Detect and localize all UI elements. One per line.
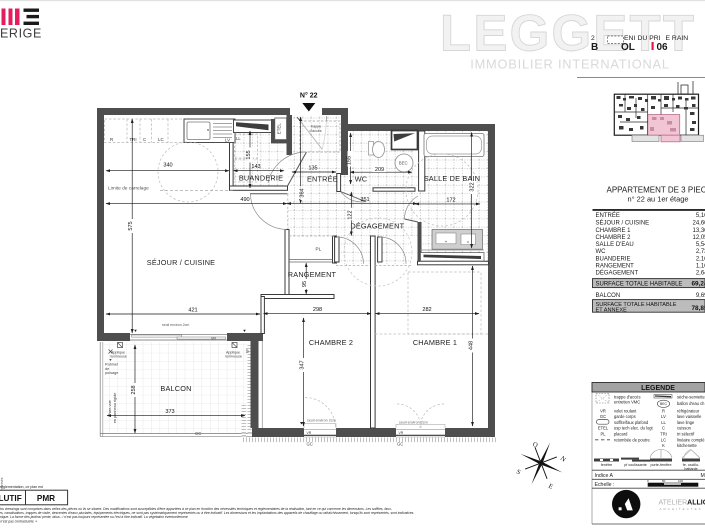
svg-text:EP: EP	[246, 348, 250, 353]
svg-text:421: 421	[188, 308, 197, 314]
svg-text:SALLE D'EAU: SALLE D'EAU	[596, 242, 634, 248]
svg-text:lumineuse: lumineuse	[111, 355, 127, 359]
svg-text:volet roulant: volet roulant	[614, 408, 637, 413]
svg-text:SALLE DE BAIN: SALLE DE BAIN	[424, 174, 481, 183]
svg-text:seuil environ 2cm: seuil environ 2cm	[307, 418, 336, 422]
svg-text:78,85: 78,85	[692, 305, 705, 312]
svg-text:K: K	[662, 443, 665, 448]
svg-text:373: 373	[165, 409, 174, 415]
svg-text:M: M	[701, 473, 705, 479]
svg-text:575: 575	[128, 221, 134, 230]
svg-text:GC: GC	[397, 442, 403, 447]
svg-text:69,24: 69,24	[692, 281, 705, 288]
svg-text:282: 282	[422, 307, 431, 313]
svg-text:100: 100	[678, 479, 683, 483]
svg-text:ENTRÉE: ENTRÉE	[596, 212, 620, 219]
svg-text:fenêtre: fenêtre	[601, 463, 612, 467]
svg-text:13,36: 13,36	[692, 228, 705, 234]
svg-text:seuil environ 2cm: seuil environ 2cm	[162, 323, 189, 327]
svg-text:ETEL: ETEL	[598, 426, 609, 431]
svg-text:Limite de carrelage: Limite de carrelage	[108, 186, 149, 192]
svg-text:2,73: 2,73	[696, 249, 705, 255]
svg-text:LUTIF: LUTIF	[0, 494, 22, 503]
svg-text:VR: VR	[211, 336, 216, 340]
svg-text:entretien VMC: entretien VMC	[614, 399, 640, 404]
svg-text:143: 143	[251, 164, 260, 170]
svg-text:PL: PL	[600, 432, 606, 437]
svg-text:155: 155	[347, 156, 353, 165]
svg-text:ENTRÉE: ENTRÉE	[307, 175, 338, 184]
svg-text:retombée de poutre: retombée de poutre	[614, 437, 650, 442]
svg-text:C: C	[143, 137, 146, 142]
svg-text:SURFACE TOTALE HABITABLE: SURFACE TOTALE HABITABLE	[596, 281, 683, 287]
svg-text:172: 172	[446, 197, 455, 203]
svg-text:2,16: 2,16	[696, 256, 705, 262]
svg-text:DÉGAGEMENT: DÉGAGEMENT	[596, 270, 639, 277]
svg-text:BALCON: BALCON	[596, 293, 621, 299]
svg-text:SÉJOUR / CUISINE: SÉJOUR / CUISINE	[147, 258, 215, 267]
svg-text:Pare-vue: Pare-vue	[108, 400, 112, 415]
svg-text:R: R	[110, 137, 113, 142]
svg-text:SÉJOUR / CUISINE: SÉJOUR / CUISINE	[596, 220, 650, 227]
svg-text:en panneau rigide: en panneau rigide	[113, 393, 117, 423]
svg-text:351: 351	[360, 197, 369, 203]
svg-text:esp tech elec. du logt: esp tech elec. du logt	[614, 426, 654, 431]
svg-text:PL: PL	[316, 247, 322, 252]
svg-text:LC: LC	[661, 437, 666, 442]
svg-text:C: C	[662, 426, 665, 431]
svg-text:BEC: BEC	[399, 161, 408, 166]
svg-text:réfrigérateur: réfrigérateur	[677, 408, 700, 413]
svg-text:PMR: PMR	[37, 494, 55, 503]
svg-text:porte-fenêtre: porte-fenêtre	[650, 463, 671, 467]
svg-text:CHAMBRE 2: CHAMBRE 2	[309, 338, 353, 347]
svg-text:490: 490	[240, 197, 249, 203]
svg-text:N° 22: N° 22	[300, 92, 318, 100]
svg-text:ARCHITECTES: ARCHITECTES	[660, 507, 703, 511]
svg-text:lave linge: lave linge	[677, 420, 695, 425]
svg-text:LL: LL	[236, 136, 241, 141]
svg-text:1,16: 1,16	[696, 263, 705, 269]
svg-text:BUANDERIE: BUANDERIE	[239, 174, 283, 183]
svg-text:CHAMBRE 1: CHAMBRE 1	[596, 228, 632, 234]
svg-text:340: 340	[163, 163, 172, 169]
svg-text:448: 448	[469, 341, 475, 350]
svg-text:E RAIN: E RAIN	[666, 35, 689, 42]
svg-text:LV: LV	[225, 138, 230, 143]
svg-text:2,64: 2,64	[696, 271, 705, 277]
svg-text:puisage: puisage	[105, 371, 118, 375]
svg-text:364: 364	[300, 188, 306, 197]
svg-text:BALCON: BALCON	[160, 384, 191, 393]
svg-text:258: 258	[131, 385, 137, 394]
svg-text:placard: placard	[614, 432, 628, 437]
svg-text:Indice A: Indice A	[595, 473, 614, 479]
svg-text:éventuellement représentée n'e: éventuellement représentée n'est pas con…	[0, 519, 37, 523]
svg-text:seuil environ 2cm: seuil environ 2cm	[399, 420, 428, 424]
svg-text:VR: VR	[307, 431, 312, 435]
svg-text:ballon d'eau ch: ballon d'eau ch	[677, 401, 705, 406]
svg-text:APPARTEMENT DE 3 PIECES: APPARTEMENT DE 3 PIECES	[607, 186, 705, 195]
svg-text:DÉGAGEMENT: DÉGAGEMENT	[350, 222, 404, 231]
svg-text:WC: WC	[355, 175, 368, 184]
svg-text:soffite/faux plafond: soffite/faux plafond	[614, 420, 649, 425]
svg-text:347: 347	[300, 360, 306, 369]
svg-text:VR: VR	[399, 431, 404, 435]
svg-text:BEC: BEC	[660, 402, 668, 406]
svg-text:298: 298	[313, 307, 322, 313]
svg-text:GC: GC	[600, 414, 606, 419]
svg-text:12,05: 12,05	[692, 235, 705, 241]
svg-text:RANGEMENT: RANGEMENT	[288, 270, 337, 279]
svg-text:sèche-serviette: sèche-serviette	[677, 395, 705, 400]
svg-text:BUANDERIE: BUANDERIE	[596, 256, 631, 262]
svg-text:9,69: 9,69	[696, 293, 705, 299]
svg-text:TRI: TRI	[130, 137, 137, 142]
svg-text:Echelle :: Echelle :	[595, 482, 615, 488]
svg-text:CHAMBRE 1: CHAMBRE 1	[413, 338, 457, 347]
svg-text:WC: WC	[596, 249, 607, 255]
svg-text:R: R	[662, 408, 665, 413]
svg-text:garde corps: garde corps	[614, 414, 636, 419]
svg-text:lumineuse: lumineuse	[226, 355, 242, 359]
svg-text:OL: OL	[621, 42, 635, 53]
svg-text:5,16: 5,16	[696, 213, 705, 219]
svg-text:135: 135	[308, 166, 317, 172]
svg-text:LV: LV	[661, 414, 666, 419]
svg-text:ment à la réglementation, ce p: ment à la réglementation, ce plan est	[0, 485, 43, 489]
svg-text:LC: LC	[158, 137, 164, 142]
svg-text:CHAMBRE 2: CHAMBRE 2	[596, 235, 632, 241]
svg-text:VR: VR	[600, 408, 606, 413]
svg-text:n° 22 au 1er étage: n° 22 au 1er étage	[628, 194, 689, 203]
svg-text:linéaire complé: linéaire complé	[677, 437, 705, 442]
svg-text:ERIGE: ERIGE	[0, 27, 42, 41]
svg-text:24,60: 24,60	[692, 221, 705, 227]
svg-text:GC: GC	[307, 442, 313, 447]
svg-text:B: B	[591, 42, 598, 53]
svg-text:DU PRI: DU PRI	[638, 35, 661, 42]
svg-text:TRI: TRI	[660, 432, 667, 437]
svg-text:tri sélectif: tri sélectif	[677, 432, 695, 437]
svg-text:cuisson: cuisson	[677, 426, 692, 431]
svg-text:kitchenette: kitchenette	[677, 443, 698, 448]
svg-text:d'accès: d'accès	[310, 129, 322, 133]
svg-text:95: 95	[302, 281, 308, 287]
svg-text:RANGEMENT: RANGEMENT	[596, 263, 635, 269]
svg-text:155: 155	[246, 150, 252, 159]
svg-text:5,54: 5,54	[696, 242, 705, 248]
svg-text:2: 2	[591, 35, 595, 42]
svg-text:ETEL: ETEL	[277, 123, 282, 135]
svg-text:LEGENDE: LEGENDE	[641, 385, 675, 392]
svg-text:50: 50	[662, 479, 666, 483]
svg-text:IMMOBILIER INTERNATIONAL: IMMOBILIER INTERNATIONAL	[470, 57, 670, 72]
svg-text:ET ANNEXE: ET ANNEXE	[596, 308, 628, 314]
svg-text:GC: GC	[195, 431, 201, 436]
svg-text:LL: LL	[661, 420, 666, 425]
svg-text:209: 209	[375, 167, 384, 173]
svg-text:122: 122	[347, 210, 353, 219]
svg-text:lave vaisselle: lave vaisselle	[677, 414, 702, 419]
svg-text:ENI: ENI	[624, 35, 635, 42]
svg-text:ATELIERALLIONE: ATELIERALLIONE	[659, 500, 705, 507]
svg-text:06: 06	[657, 42, 669, 53]
svg-text:pf coulissante: pf coulissante	[624, 463, 647, 467]
svg-text:322: 322	[470, 182, 476, 191]
